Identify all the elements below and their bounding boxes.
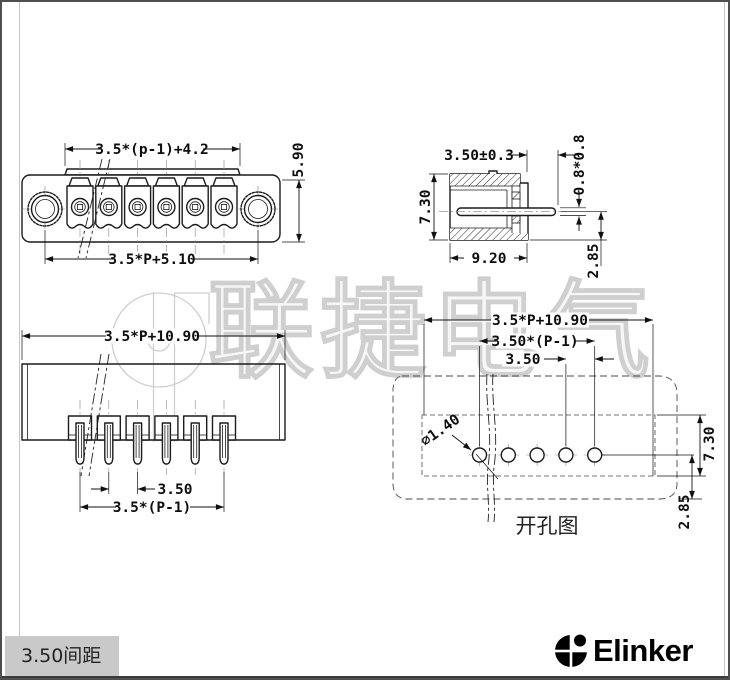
dim-side-pin-length: 3.50±0.3 <box>444 148 514 164</box>
dim-front-bottom: 3.5*P+5.10 <box>108 252 195 268</box>
panel-cutout-view: 3.5*P+10.90 3.50*(P-1) 3.50 ⌀1.40 7.30 2… <box>393 313 718 539</box>
dim-side-height: 7.30 <box>418 190 434 225</box>
rear-pin <box>97 400 120 475</box>
side-section-view: 7.30 3.50±0.3 0.8*0.8 9.20 2.85 <box>418 134 607 278</box>
drill-hole <box>555 444 577 466</box>
sheet-bottom-bar <box>2 676 730 680</box>
pitch-label-box: 3.50间距 <box>5 636 119 677</box>
drill-hole <box>469 444 491 466</box>
dim-drill-width: 3.5*P+10.90 <box>492 313 588 329</box>
dim-hole-diameter: ⌀1.40 <box>418 412 463 450</box>
rear-pin <box>69 400 92 475</box>
dim-side-pin-section: 0.8*0.8 <box>572 134 588 195</box>
brand-logo: Elinker <box>553 631 693 671</box>
rear-pin <box>126 400 149 475</box>
rear-pin <box>184 400 207 475</box>
technical-drawing: 3.5*(p-1)+4.2 5.90 3.5*P+5.10 <box>2 2 730 680</box>
dim-front-height: 5.90 <box>291 143 307 178</box>
front-view: 3.5*(p-1)+4.2 5.90 3.5*P+5.10 <box>22 142 307 269</box>
drill-view-caption: 开孔图 <box>516 514 579 538</box>
dim-drill-height: 7.30 <box>702 427 718 462</box>
brand-name: Elinker <box>593 633 693 669</box>
pitch-label: 3.50间距 <box>5 636 119 677</box>
rear-pin <box>213 400 236 475</box>
dim-side-offset: 2.85 <box>586 244 602 279</box>
dim-rear-pitch-span: 3.5*(P-1) <box>113 500 192 516</box>
dim-drill-pitch-span: 3.50*(P-1) <box>491 334 578 350</box>
solder-pin <box>457 208 556 216</box>
dim-side-depth: 9.20 <box>472 251 507 267</box>
dim-front-top: 3.5*(p-1)+4.2 <box>95 142 209 158</box>
drawing-sheet: 联捷电气 <box>0 0 730 680</box>
dim-drill-pitch: 3.50 <box>506 352 541 368</box>
dim-rear-pitch: 3.50 <box>158 482 193 498</box>
dim-drill-offset: 2.85 <box>677 495 693 530</box>
dim-rear-width: 3.5*P+10.90 <box>104 329 200 345</box>
break-line <box>81 354 101 476</box>
elinker-logo-icon <box>553 632 589 670</box>
drill-hole <box>497 444 519 466</box>
drill-hole <box>526 444 548 466</box>
